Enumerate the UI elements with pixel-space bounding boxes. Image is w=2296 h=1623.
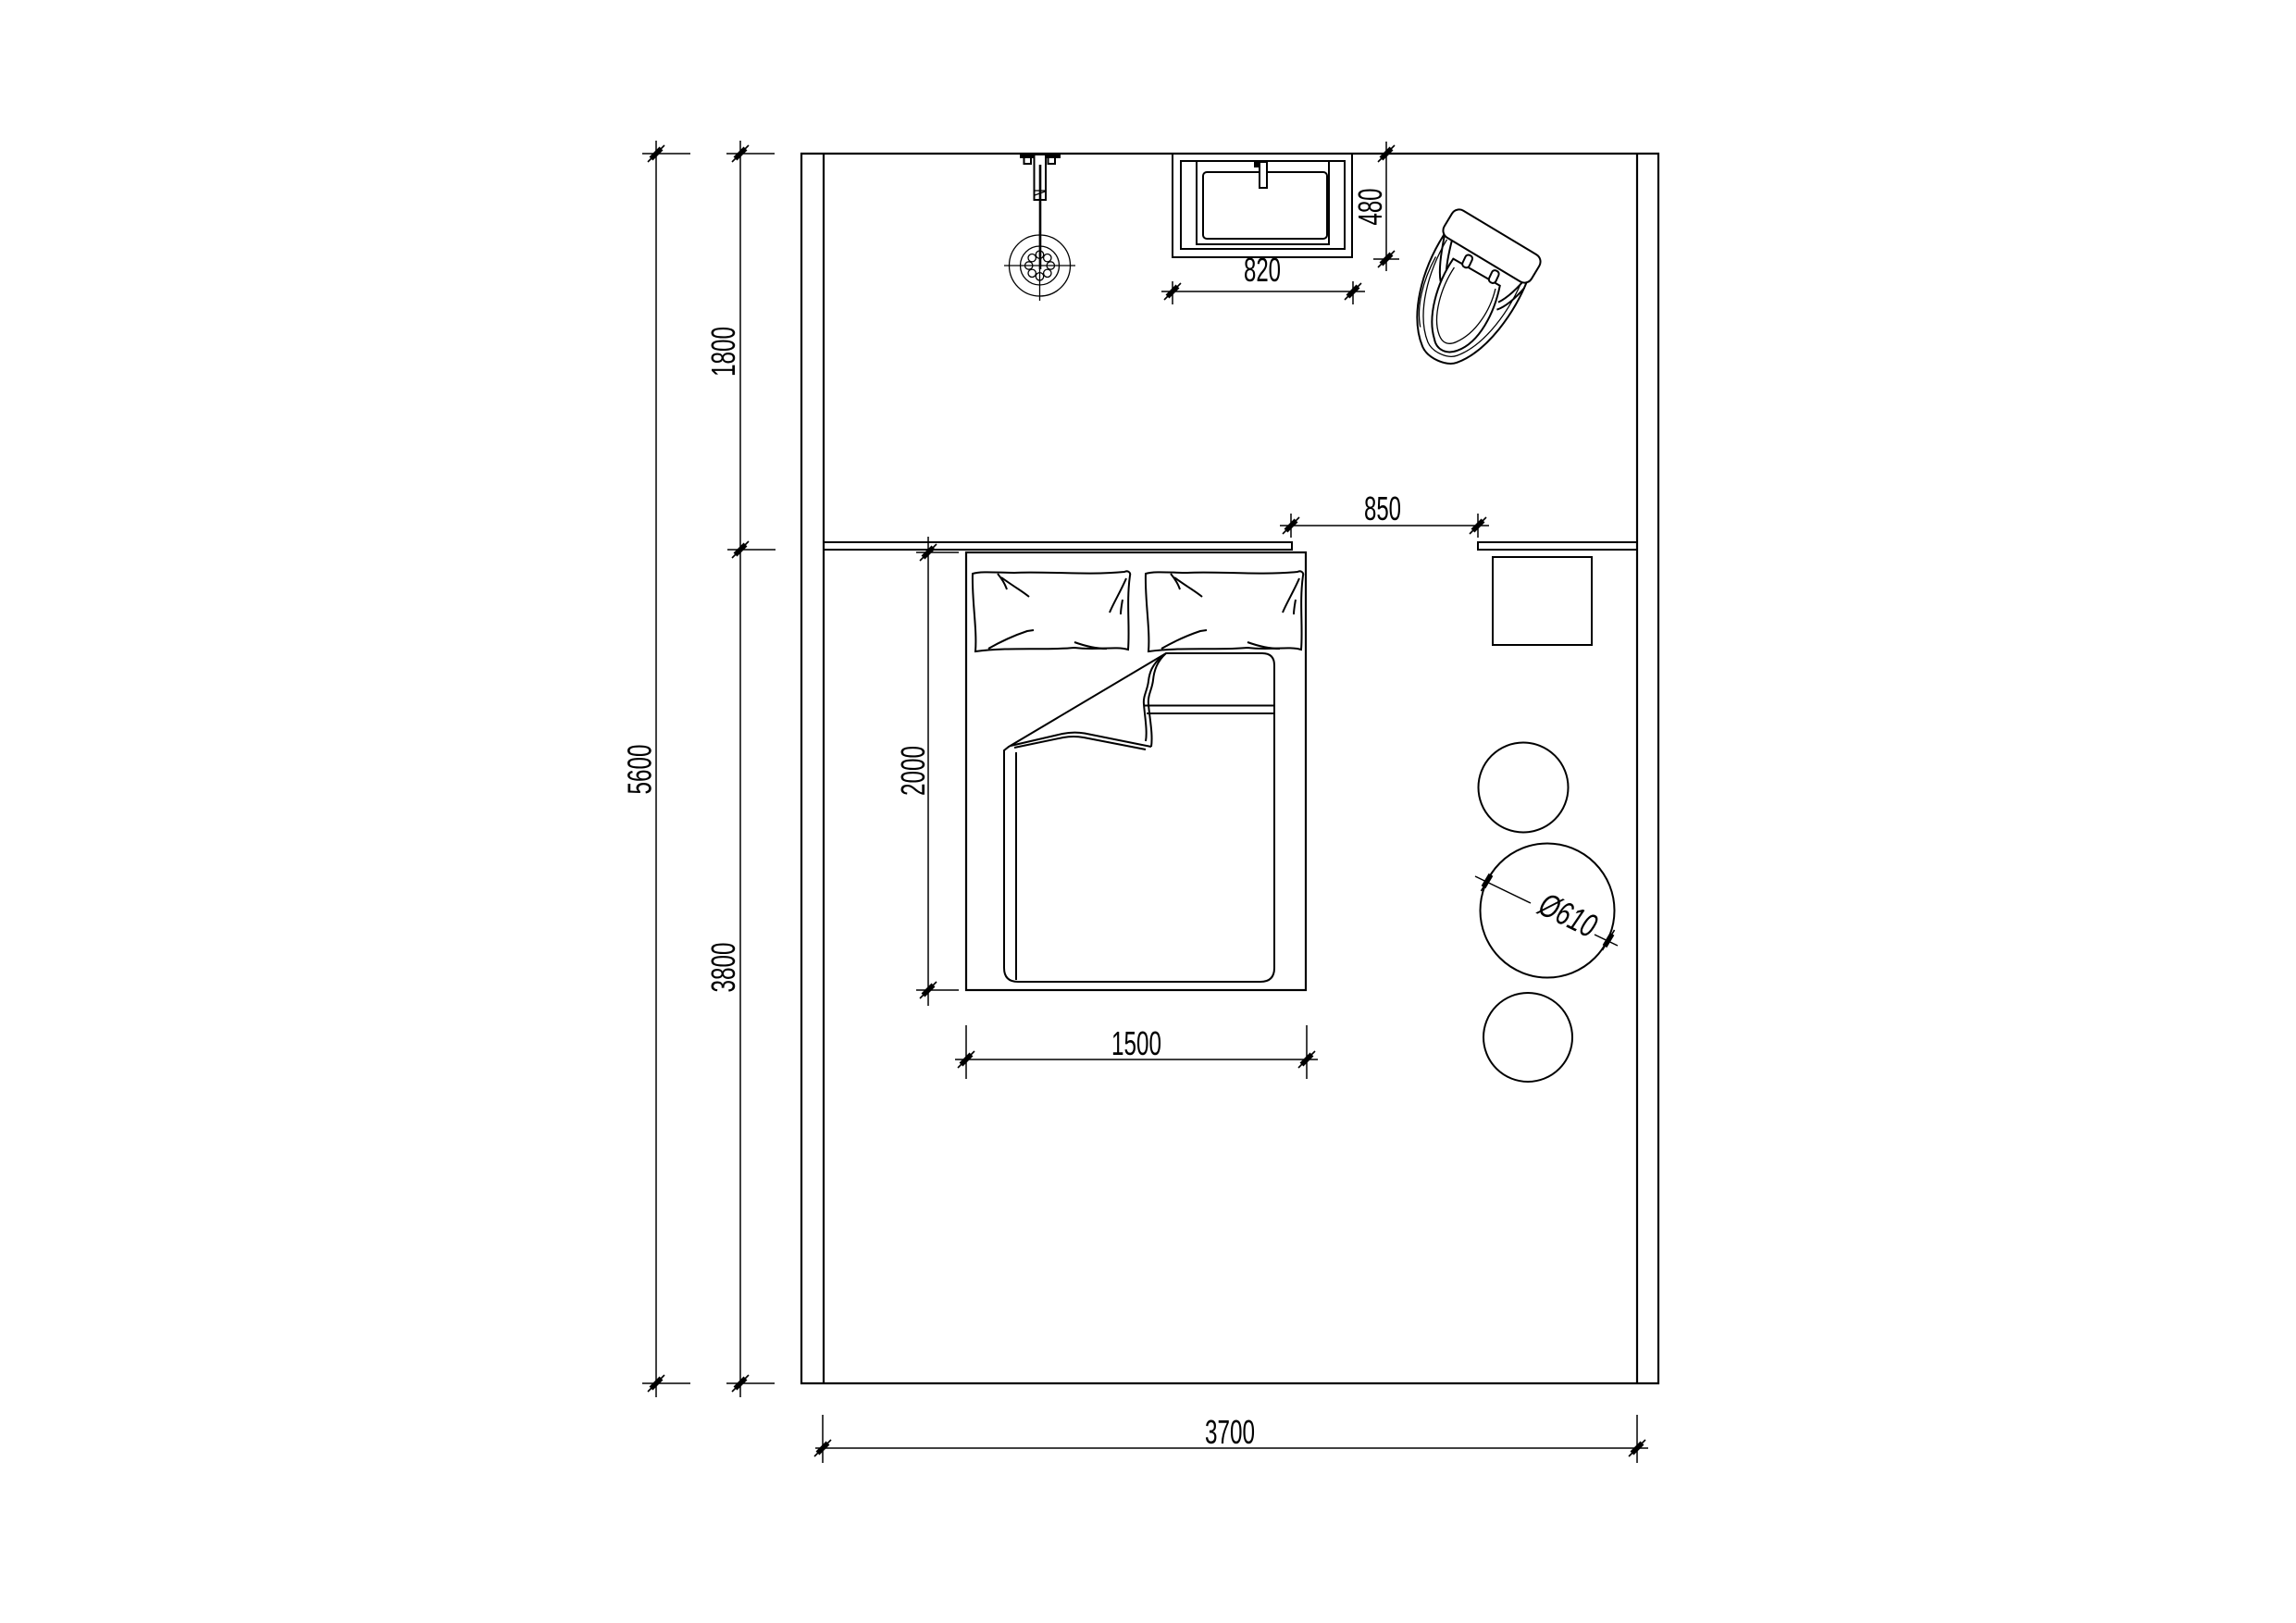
svg-text:820: 820 <box>1244 251 1281 289</box>
svg-text:3700: 3700 <box>1205 1413 1255 1451</box>
svg-text:2000: 2000 <box>894 746 932 796</box>
svg-text:850: 850 <box>1364 489 1401 527</box>
svg-text:1500: 1500 <box>1111 1024 1161 1062</box>
svg-text:3800: 3800 <box>704 943 742 993</box>
svg-text:480: 480 <box>1351 189 1389 226</box>
svg-text:5600: 5600 <box>621 745 659 795</box>
svg-text:1800: 1800 <box>704 327 742 377</box>
